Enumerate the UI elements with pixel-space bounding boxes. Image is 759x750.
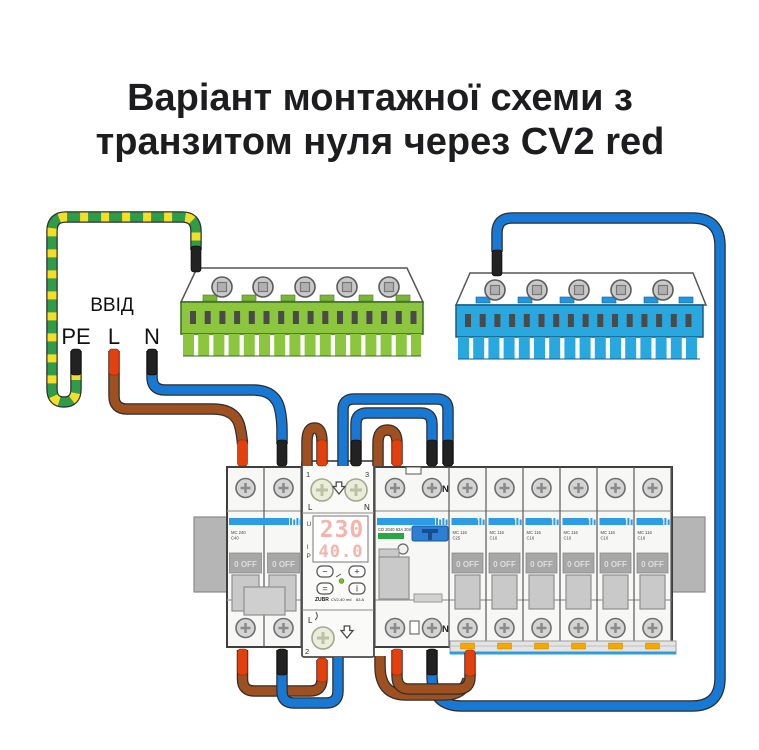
wiring-diagram: 0 OFF Варіант монтажної схеми з транзито… <box>0 0 759 750</box>
neutral-input-ferrule <box>147 349 157 375</box>
cv2-terminal-3-screw <box>345 479 367 501</box>
cv2-plus-glyph: + <box>354 567 359 577</box>
cv2-current-readout: 40.0 <box>319 542 364 562</box>
cv2-n-top-label: N <box>364 503 370 512</box>
cv2-power-glyph: i <box>356 584 358 594</box>
cv2-terminal-1-screw <box>311 479 333 501</box>
rcd-n-bottom-label: N <box>442 624 449 635</box>
din-rail-right <box>672 517 705 592</box>
comb-busbar <box>450 641 676 655</box>
cv2-minus-glyph: − <box>322 567 327 577</box>
diagram-title: Варіант монтажної схеми з транзитом нуля… <box>96 77 665 163</box>
cv2-terminal-2-label: 2 <box>305 647 309 656</box>
pe-label: PE <box>61 324 90 349</box>
pe-busbar <box>181 268 423 356</box>
cv2-p-label: P <box>307 553 311 560</box>
mcb-rating: C25 <box>453 536 461 541</box>
live-input-ferrule <box>109 349 119 375</box>
cv2-model: CV2-40 red <box>331 597 351 602</box>
title-line-1: Варіант монтажної схеми з <box>127 77 633 119</box>
cv2-l-bottom-label: L <box>308 616 313 625</box>
busbar-screw <box>212 277 232 297</box>
live-input-wire <box>114 351 243 444</box>
neutral-label: N <box>144 324 160 349</box>
din-rail-left <box>194 517 227 592</box>
mcb1-feed-ferrule <box>465 650 475 676</box>
breaker-off-indicator: 0 OFF <box>272 560 295 569</box>
live-label: L <box>108 324 120 349</box>
mcb-rating: C16 <box>564 536 572 541</box>
cv2-l-top-label: L <box>308 503 313 512</box>
cv2-rating: 63 A <box>356 597 364 602</box>
mcb-rating: C16 <box>490 536 498 541</box>
cv2-u-label: U <box>307 521 312 528</box>
cv2-terminal-1-label: 1 <box>306 470 310 479</box>
cv2-brand: ZUBR <box>315 597 329 603</box>
mcb-label: MC 116 <box>490 530 505 535</box>
mcb-label: MC 116 <box>564 530 579 535</box>
pe-busbar-ferrule <box>191 246 201 272</box>
rcd-model-label: CD 2040 63A 30mA <box>378 527 415 532</box>
breaker-toggle-tie <box>244 587 285 615</box>
breaker-off-indicator: 0 OFF <box>234 560 257 569</box>
cv2-set-glyph: = <box>322 584 327 594</box>
input-label: ВВІД <box>90 295 134 316</box>
cv2-relay: 1 3 L N U I P 230 40.0 − + = i ZUBR CV2-… <box>302 461 374 657</box>
mcb-rating: C16 <box>527 536 535 541</box>
mcb-label: MC 116 <box>453 530 468 535</box>
main-breaker-rating: C40 <box>231 536 239 541</box>
neutral-input-wire <box>152 351 282 444</box>
cv2-voltage-readout: 230 <box>320 517 365 543</box>
title-line-2: транзитом нуля через CV2 red <box>96 121 665 163</box>
mcb-label: MC 116 <box>527 530 542 535</box>
main-breaker-model: MC 240 <box>231 530 246 535</box>
rcd-status-bar <box>378 533 404 539</box>
n-busbar-ferrule <box>492 250 502 276</box>
cv2-i-label: I <box>307 544 309 551</box>
cv2-status-led <box>339 579 344 584</box>
mcb-label: MC 116 <box>601 530 616 535</box>
mcb-rating: C16 <box>638 536 646 541</box>
cv2-terminal-3-label: 3 <box>365 470 369 479</box>
pe-input-ferrule <box>71 349 81 375</box>
mcb-rating: C16 <box>601 536 609 541</box>
cv2-terminal-2-screw <box>312 627 334 649</box>
rcd-n-top-label: N <box>442 484 449 495</box>
n-busbar <box>456 273 706 359</box>
mcb-label: MC 116 <box>638 530 653 535</box>
rcd-handle <box>379 557 409 599</box>
